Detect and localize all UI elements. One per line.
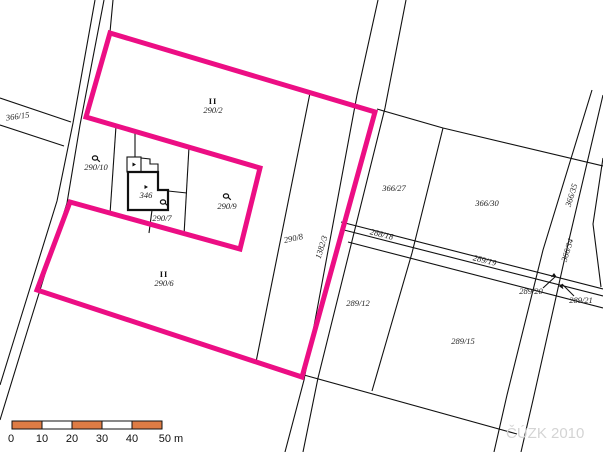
parcel-label-290-2: 290/2 bbox=[203, 105, 223, 115]
parcel-label-346: 346 bbox=[139, 190, 154, 200]
parcel-label-289-21: 289/21 bbox=[569, 295, 593, 305]
scale-tick-50m: 50 m bbox=[159, 433, 183, 445]
east-strip-east-edge bbox=[521, 95, 603, 452]
scale-tick-40: 40 bbox=[126, 433, 138, 445]
parcel-label-366-27: 366/27 bbox=[381, 183, 406, 193]
cadastral-map: II II 366/15 290/10 290/2 346 290/7 290/… bbox=[0, 0, 603, 452]
road-east-edge bbox=[0, 0, 104, 420]
scale-bar: 0 10 20 30 40 50 m bbox=[8, 421, 183, 445]
divider-290-10 bbox=[110, 126, 116, 214]
garden-symbol-290-7 bbox=[160, 200, 167, 206]
parcel-label-290-8: 290/8 bbox=[283, 231, 305, 245]
scale-tick-20: 20 bbox=[66, 433, 78, 445]
parcel-label-290-7: 290/7 bbox=[152, 213, 172, 223]
parcel-boundary-lines bbox=[0, 0, 603, 452]
parcel-label-289-20: 289/20 bbox=[519, 286, 543, 296]
parcel-label-289-12: 289/12 bbox=[346, 298, 370, 308]
scale-tick-30: 30 bbox=[96, 433, 108, 445]
parcel-label-290-10: 290/10 bbox=[84, 162, 108, 172]
north-boundary-366 bbox=[377, 109, 603, 166]
parcel-label-290-6: 290/6 bbox=[154, 278, 174, 288]
copyright-watermark: ČÚZK 2010 bbox=[506, 425, 584, 442]
scale-tick-10: 10 bbox=[36, 433, 48, 445]
east-strip-west-edge bbox=[494, 90, 592, 452]
parcel-label-366-15: 366/15 bbox=[4, 109, 30, 122]
building-346 bbox=[127, 157, 168, 210]
south-boundary-289 bbox=[304, 375, 517, 434]
divider-290-7-290-9 bbox=[184, 147, 189, 235]
parcel-label-290-9: 290/9 bbox=[217, 201, 237, 211]
building-point-mark bbox=[145, 185, 149, 189]
annex-point-mark bbox=[133, 163, 137, 167]
divider-east-of-building bbox=[168, 191, 187, 193]
garden-symbol-290-9 bbox=[223, 194, 230, 200]
road-west-edge bbox=[0, 0, 95, 385]
parcel-label-366-30: 366/30 bbox=[474, 198, 499, 208]
building-zigzag-line bbox=[141, 158, 158, 172]
parcel-label-289-15: 289/15 bbox=[451, 336, 475, 346]
road-1382-west-edge bbox=[285, 0, 378, 452]
arrow-289-21 bbox=[559, 284, 574, 296]
far-right-line bbox=[593, 158, 603, 287]
boundary-stub bbox=[110, 0, 113, 32]
cadastral-map-viewport[interactable]: II II 366/15 290/10 290/2 346 290/7 290/… bbox=[0, 0, 603, 452]
scale-tick-0: 0 bbox=[8, 433, 14, 445]
garden-symbol-290-10 bbox=[92, 156, 99, 162]
parcel-label-366-34: 366/34 bbox=[559, 237, 576, 264]
divider-366-27-366-30 bbox=[372, 128, 443, 391]
divider-290-2-290-8 bbox=[256, 93, 310, 362]
strip-366-15-south bbox=[0, 125, 64, 146]
